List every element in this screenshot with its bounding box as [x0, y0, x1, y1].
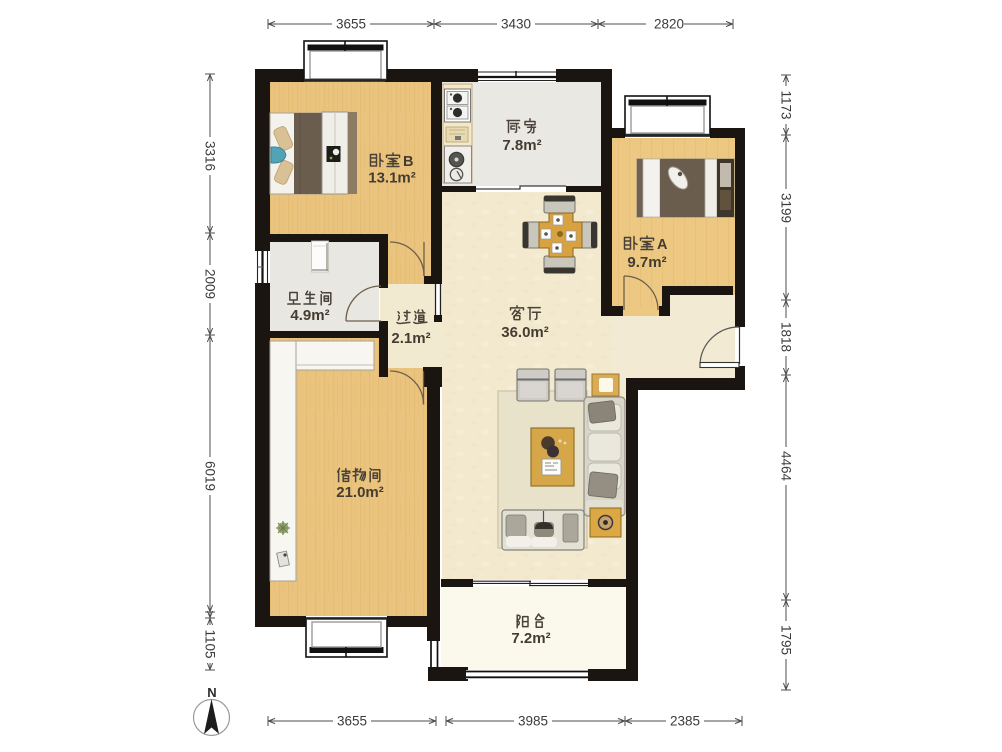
svg-text:1105: 1105: [203, 629, 218, 658]
svg-text:N: N: [207, 685, 216, 700]
svg-text:1173: 1173: [779, 90, 794, 119]
svg-text:3985: 3985: [518, 714, 548, 729]
svg-text:36.0m²: 36.0m²: [501, 324, 549, 341]
svg-text:B: B: [403, 154, 413, 170]
svg-text:4464: 4464: [779, 451, 794, 482]
svg-text:A: A: [657, 237, 668, 253]
svg-text:3430: 3430: [501, 17, 531, 32]
svg-text:2385: 2385: [670, 714, 700, 729]
svg-text:9.7m²: 9.7m²: [627, 254, 666, 271]
svg-text:4.9m²: 4.9m²: [290, 307, 329, 324]
svg-text:7.2m²: 7.2m²: [511, 630, 550, 647]
svg-text:13.1m²: 13.1m²: [368, 170, 416, 187]
svg-text:1795: 1795: [779, 625, 794, 655]
svg-text:3316: 3316: [203, 141, 218, 171]
svg-text:1818: 1818: [779, 322, 794, 352]
svg-text:2.1m²: 2.1m²: [391, 330, 430, 347]
svg-text:7.8m²: 7.8m²: [502, 137, 541, 154]
svg-text:6019: 6019: [203, 461, 218, 491]
svg-text:3655: 3655: [337, 714, 367, 729]
svg-text:3199: 3199: [779, 193, 794, 223]
svg-text:2009: 2009: [203, 269, 218, 299]
svg-text:3655: 3655: [336, 17, 366, 32]
svg-text:21.0m²: 21.0m²: [336, 484, 384, 501]
svg-text:2820: 2820: [654, 17, 684, 32]
